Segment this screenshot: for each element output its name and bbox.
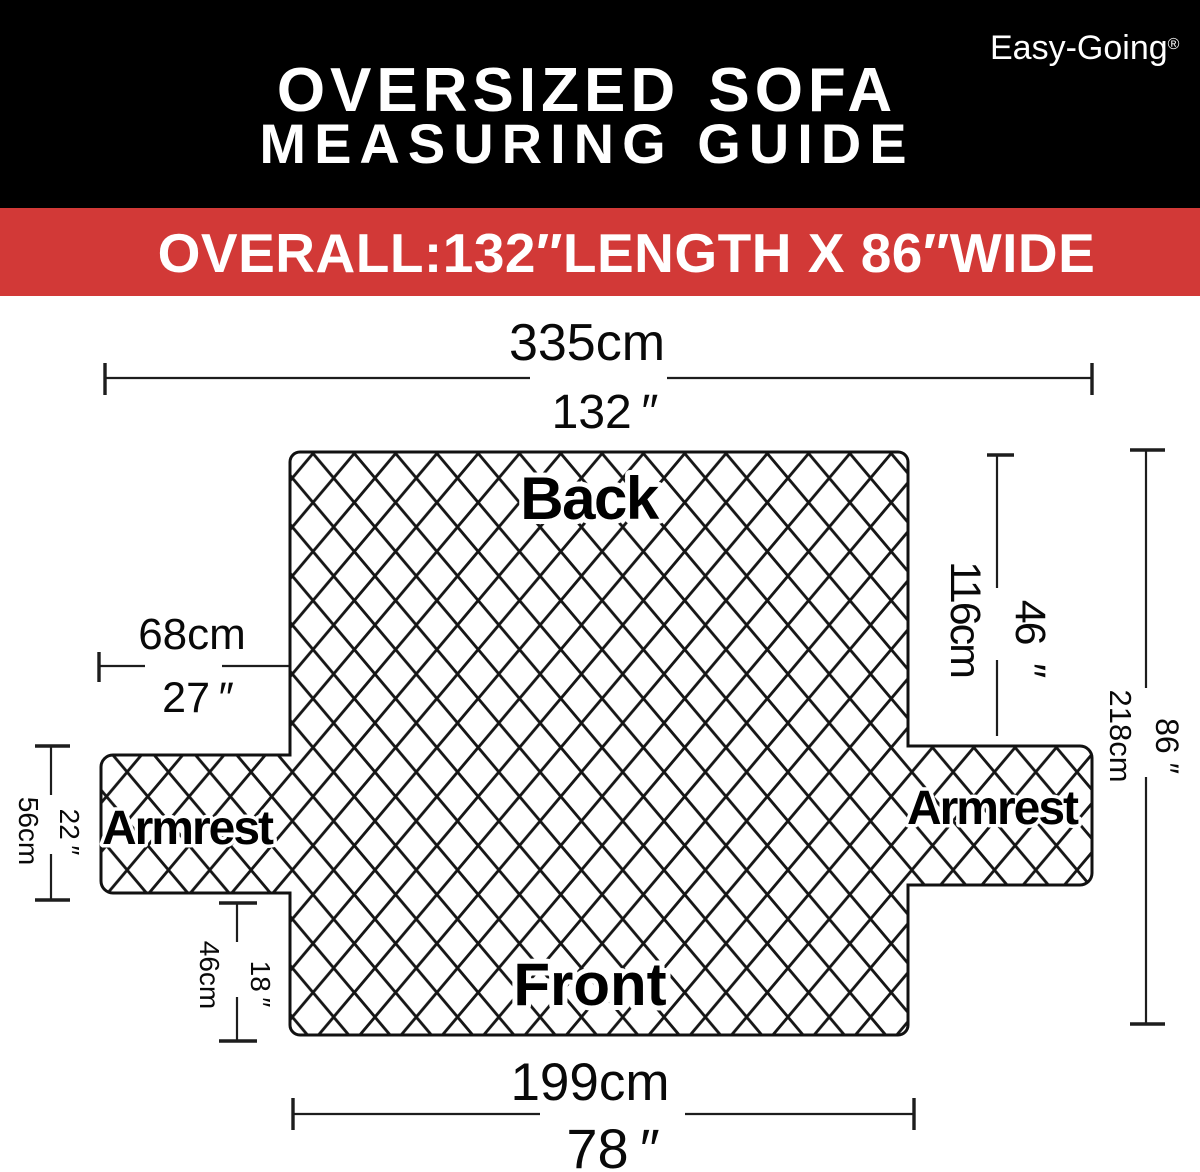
svg-text:46cm: 46cm [194,941,225,1009]
svg-text:Armrest: Armrest [102,802,274,855]
svg-text:Back: Back [520,465,660,532]
svg-text:218cm: 218cm [1103,689,1138,782]
svg-text:335cm: 335cm [509,314,665,372]
svg-text:56cm: 56cm [13,797,44,865]
svg-text:199cm: 199cm [510,1053,669,1112]
svg-text:116cm: 116cm [941,561,989,677]
svg-text:18 ″: 18 ″ [245,961,276,1008]
svg-text:86 ″: 86 ″ [1149,718,1185,774]
svg-text:Armrest: Armrest [907,782,1079,835]
svg-text:27 ″: 27 ″ [162,674,234,722]
svg-text:46 ″: 46 ″ [1006,600,1054,678]
svg-text:78 ″: 78 ″ [566,1117,659,1172]
svg-text:132 ″: 132 ″ [552,386,659,439]
svg-text:Front: Front [513,951,666,1018]
svg-text:68cm: 68cm [138,610,246,659]
svg-text:22 ″: 22 ″ [54,809,85,856]
